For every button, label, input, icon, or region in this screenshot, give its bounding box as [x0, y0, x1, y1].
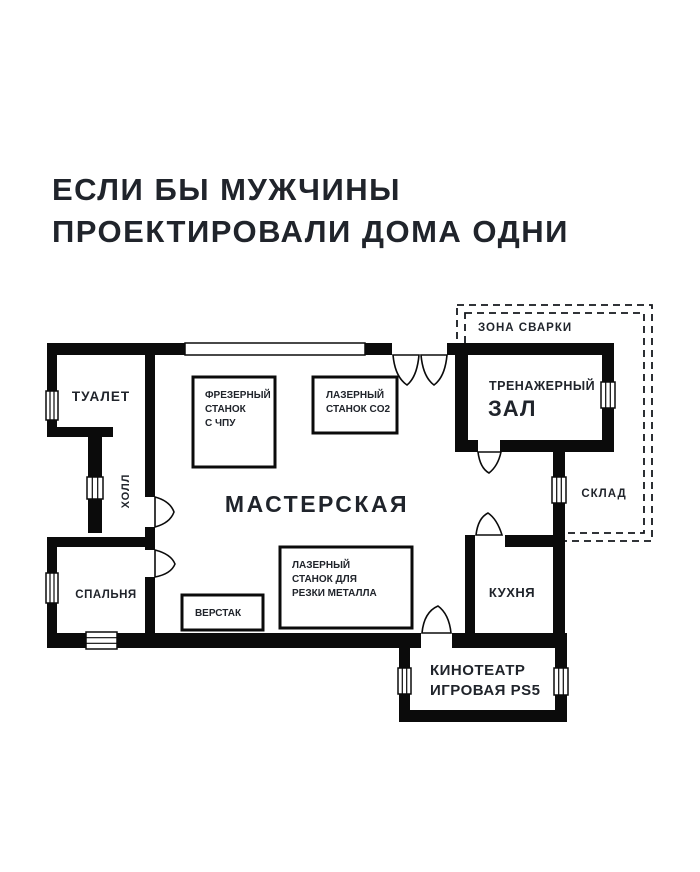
floor-plan: ТУАЛЕТ ХОЛЛ СПАЛЬНЯ МАСТЕРСКАЯ ТРЕНАЖЕРН… — [0, 0, 700, 872]
laser-co2-label-line1: ЛАЗЕРНЫЙ — [326, 388, 384, 401]
workshop-top-window-icon — [185, 343, 365, 355]
gym-east-window-icon — [601, 382, 615, 408]
hall-label: ХОЛЛ — [120, 474, 132, 509]
gym-label-line2: ЗАЛ — [488, 396, 536, 421]
laser-co2-label-line2: СТАНОК CO2 — [326, 404, 391, 415]
cnc-mill-label-line3: С ЧПУ — [205, 418, 236, 429]
wall-hall-east-a — [145, 437, 155, 497]
welding-zone-label: ЗОНА СВАРКИ — [478, 322, 572, 334]
wall-toilet-east — [145, 343, 155, 437]
toilet-label: ТУАЛЕТ — [72, 389, 130, 404]
wall-cinema-bottom — [399, 710, 567, 722]
cinema-east-window-icon — [554, 668, 568, 695]
cnc-mill-label-line2: СТАНОК — [205, 404, 247, 415]
cinema-label-line2: ИГРОВАЯ PS5 — [430, 682, 540, 699]
wall-bottom — [47, 633, 567, 648]
storage-wall-window-icon — [552, 477, 566, 503]
workshop-label: МАСТЕРСКАЯ — [225, 491, 409, 517]
kitchen-label: КУХНЯ — [489, 585, 535, 600]
cinema-door-gap — [421, 632, 452, 649]
workbench-label: ВЕРСТАК — [195, 608, 242, 619]
double-door-gap — [392, 342, 447, 356]
hall-west-window-icon — [87, 477, 103, 499]
laser-metal-label-line1: ЛАЗЕРНЫЙ — [292, 558, 350, 571]
wall-bedroom-top — [47, 537, 155, 547]
cinema-label-line1: КИНОТЕАТР — [430, 662, 525, 679]
wall-kitchen-top — [505, 535, 553, 547]
wall-west-upper — [47, 343, 57, 437]
gym-label-line1: ТРЕНАЖЕРНЫЙ — [489, 378, 595, 393]
bedroom-bottom-window-icon — [86, 632, 117, 649]
bedroom-west-window-icon — [46, 573, 58, 603]
cinema-west-window-icon — [398, 668, 411, 694]
storage-label: СКЛАД — [581, 488, 626, 500]
laser-metal-label-line3: РЕЗКИ МЕТАЛЛА — [292, 588, 377, 599]
wall-toilet-bottom — [47, 427, 113, 437]
bedroom-label: СПАЛЬНЯ — [75, 589, 136, 601]
toilet-west-window-icon — [46, 391, 58, 420]
wall-kitchen-west — [465, 535, 475, 633]
cnc-mill-label-line1: ФРЕЗЕРНЫЙ — [205, 388, 271, 401]
wall-gym-west — [455, 343, 468, 452]
laser-metal-label-line2: СТАНОК ДЛЯ — [292, 574, 357, 585]
wall-gym-bottom-jamb — [455, 440, 478, 452]
meme-image: ЕСЛИ БЫ МУЖЧИНЫ ПРОЕКТИРОВАЛИ ДОМА ОДНИ — [0, 0, 700, 872]
